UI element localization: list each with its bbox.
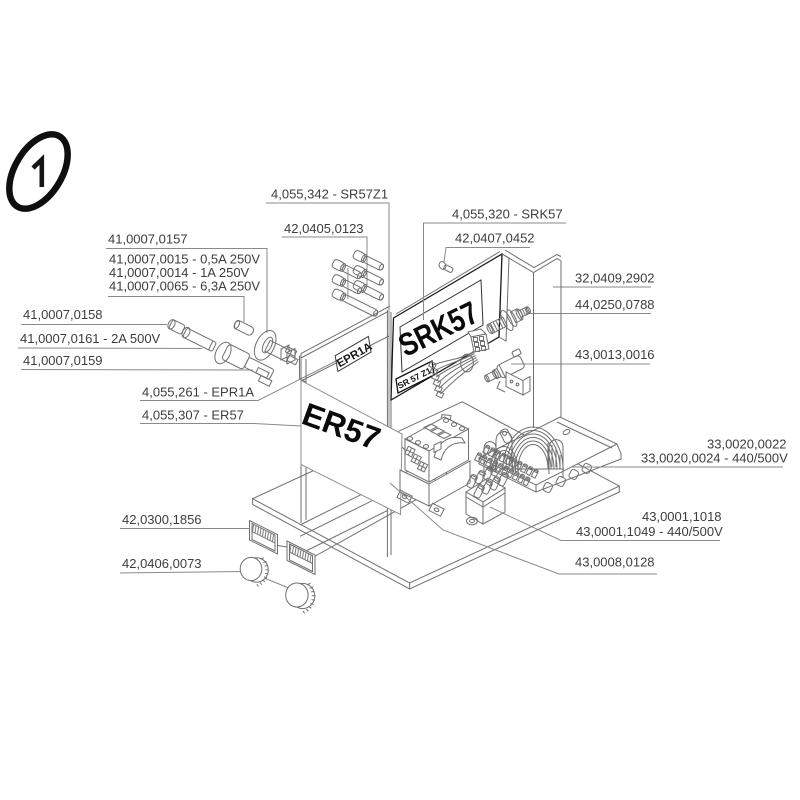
svg-text:41,0007,0157: 41,0007,0157 [108,232,188,247]
svg-text:33,0020,0024 - 440/500V: 33,0020,0024 - 440/500V [641,451,788,466]
svg-text:41,0007,0161 - 2A 500V: 41,0007,0161 - 2A 500V [20,331,161,346]
svg-text:4,055,342 - SR57Z1: 4,055,342 - SR57Z1 [271,187,388,202]
svg-text:41,0007,0158: 41,0007,0158 [23,307,103,322]
svg-text:4,055,261 - EPR1A: 4,055,261 - EPR1A [142,385,254,400]
svg-text:41,0007,0159: 41,0007,0159 [23,353,103,368]
svg-text:44,0250,0788: 44,0250,0788 [575,297,655,312]
svg-text:4,055,307 - ER57: 4,055,307 - ER57 [142,408,244,423]
svg-text:43,0001,1018: 43,0001,1018 [642,509,722,524]
svg-text:42,0300,1856: 42,0300,1856 [122,512,202,527]
svg-text:33,0020,0022: 33,0020,0022 [707,437,787,452]
svg-text:42,0407,0452: 42,0407,0452 [455,231,535,246]
svg-text:42,0405,0123: 42,0405,0123 [284,221,364,236]
svg-text:41,0007,0065 - 6,3A 250V: 41,0007,0065 - 6,3A 250V [109,279,260,294]
svg-text:43,0001,1049 - 440/500V: 43,0001,1049 - 440/500V [576,524,723,539]
svg-text:32,0409,2902: 32,0409,2902 [575,271,655,286]
svg-text:4,055,320 - SRK57: 4,055,320 - SRK57 [452,207,563,222]
svg-text:43,0013,0016: 43,0013,0016 [575,347,655,362]
svg-text:42,0406,0073: 42,0406,0073 [122,556,202,571]
svg-text:43,0008,0128: 43,0008,0128 [575,555,655,570]
